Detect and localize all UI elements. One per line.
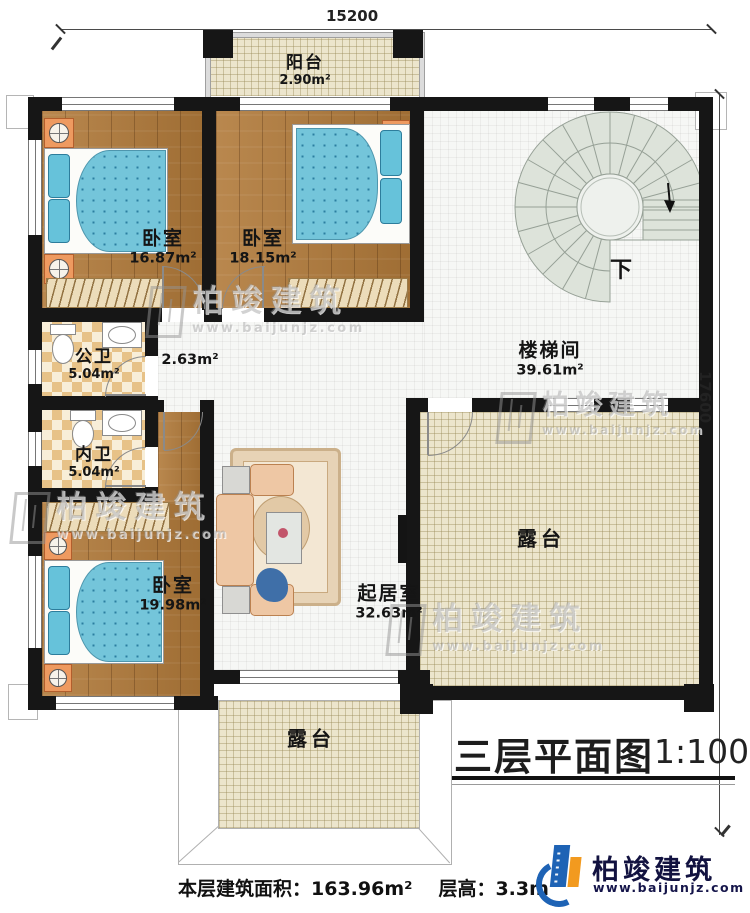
watermark-text: 柏竣建筑 www.baijunjz.com — [192, 286, 365, 336]
wall-segment — [28, 308, 162, 322]
watermark-logo-icon — [385, 604, 426, 656]
throw-blanket — [256, 568, 288, 602]
watermark-text: 柏竣建筑 www.baijunjz.com — [432, 604, 605, 654]
column — [400, 684, 433, 714]
room-label-bedroom1: 卧室 16.87m² — [129, 224, 196, 267]
window — [28, 432, 42, 466]
wardrobe — [46, 278, 164, 308]
stair-direction-label: 下 — [610, 252, 632, 284]
room-label-bath2: 内卫 5.04m² — [68, 440, 119, 480]
bed-quilt — [296, 128, 378, 240]
watermark-logo-icon — [495, 392, 536, 444]
watermark: 柏竣建筑 www.baijunjz.com — [12, 492, 229, 544]
footer-stats: 本层建筑面积：163.96m²层高：3.3m — [178, 874, 575, 901]
corner-tick — [51, 37, 63, 51]
dimension-right-line — [719, 95, 720, 835]
floor-height-text: 层高：3.3m — [438, 878, 548, 900]
watermark: 柏竣建筑 www.baijunjz.com — [388, 604, 605, 656]
pillow — [380, 130, 402, 176]
plan-title: 三层平面图 — [454, 726, 654, 781]
window — [548, 97, 594, 111]
room-label-terrace-bottom: 露台 — [287, 723, 335, 752]
armchair — [250, 464, 294, 496]
floor-plan-canvas: 15200 17600 — [0, 0, 750, 913]
watermark-text: 柏竣建筑 www.baijunjz.com — [56, 492, 229, 542]
window — [28, 140, 42, 235]
dimension-top-line — [60, 29, 712, 30]
corner-table — [222, 466, 250, 494]
balcony-parapet — [205, 32, 425, 38]
corner-tick — [720, 825, 731, 837]
flower-icon — [278, 528, 288, 538]
watermark-logo-icon — [9, 492, 50, 544]
lamp-icon — [49, 123, 69, 143]
nightstand — [44, 118, 74, 148]
lamp-icon — [49, 259, 69, 279]
column — [684, 684, 714, 712]
pillow — [48, 154, 70, 198]
wall-segment — [406, 398, 428, 412]
room-label-balcony: 阳台 2.90m² — [279, 48, 330, 88]
company-logo-icon — [538, 845, 586, 901]
room-label-bath1: 公卫 5.04m² — [68, 342, 119, 382]
watermark: 柏竣建筑 www.baijunjz.com — [498, 392, 705, 444]
watermark: 柏竣建筑 www.baijunjz.com — [148, 286, 365, 338]
door-leaf — [105, 485, 146, 487]
window — [240, 97, 390, 111]
door-leaf — [163, 412, 165, 450]
window — [240, 670, 398, 684]
wall-segment — [28, 396, 158, 410]
company-website: www.baijunjz.com — [593, 880, 745, 895]
dimension-right-label: 17600 — [696, 371, 714, 423]
hall-living-floor — [406, 322, 424, 398]
pillow — [48, 566, 70, 610]
pillow — [48, 611, 70, 655]
wall-segment — [430, 686, 713, 700]
window — [56, 696, 174, 710]
window — [62, 97, 174, 111]
watermark-text: 柏竣建筑 www.baijunjz.com — [542, 392, 705, 437]
lamp-icon — [49, 669, 67, 687]
wall-segment — [200, 400, 214, 710]
room-label-stairwell: 楼梯间 39.61m² — [516, 336, 583, 379]
nightstand — [44, 664, 72, 692]
wall-segment — [410, 97, 424, 313]
column — [203, 30, 233, 58]
corner-table — [222, 586, 250, 614]
room-label-hall: 2.63m² — [161, 352, 218, 368]
window — [630, 97, 668, 111]
dimension-top-label: 15200 — [326, 7, 378, 25]
window — [28, 556, 42, 648]
floor-area-text: 本层建筑面积：163.96m² — [178, 878, 412, 900]
plan-scale: 1:100 — [654, 732, 749, 771]
door-leaf — [427, 412, 429, 455]
tv — [398, 515, 407, 563]
title-underline — [452, 776, 735, 780]
column — [393, 30, 423, 58]
wall-segment — [202, 97, 216, 310]
wall-segment — [158, 400, 164, 412]
room-label-bedroom2: 卧室 18.15m² — [229, 224, 296, 267]
door-leaf — [105, 394, 146, 396]
room-label-terrace-right: 露台 — [517, 523, 565, 552]
room-label-bedroom3: 卧室 19.98m² — [139, 571, 206, 614]
window — [28, 350, 42, 384]
sink-icon — [108, 414, 136, 432]
title-underline-thin — [452, 784, 735, 785]
room-terrace-bottom-floor — [218, 700, 420, 829]
pillow — [48, 199, 70, 243]
pillow — [380, 178, 402, 224]
coffee-table — [266, 512, 302, 564]
watermark-logo-icon — [145, 286, 186, 338]
